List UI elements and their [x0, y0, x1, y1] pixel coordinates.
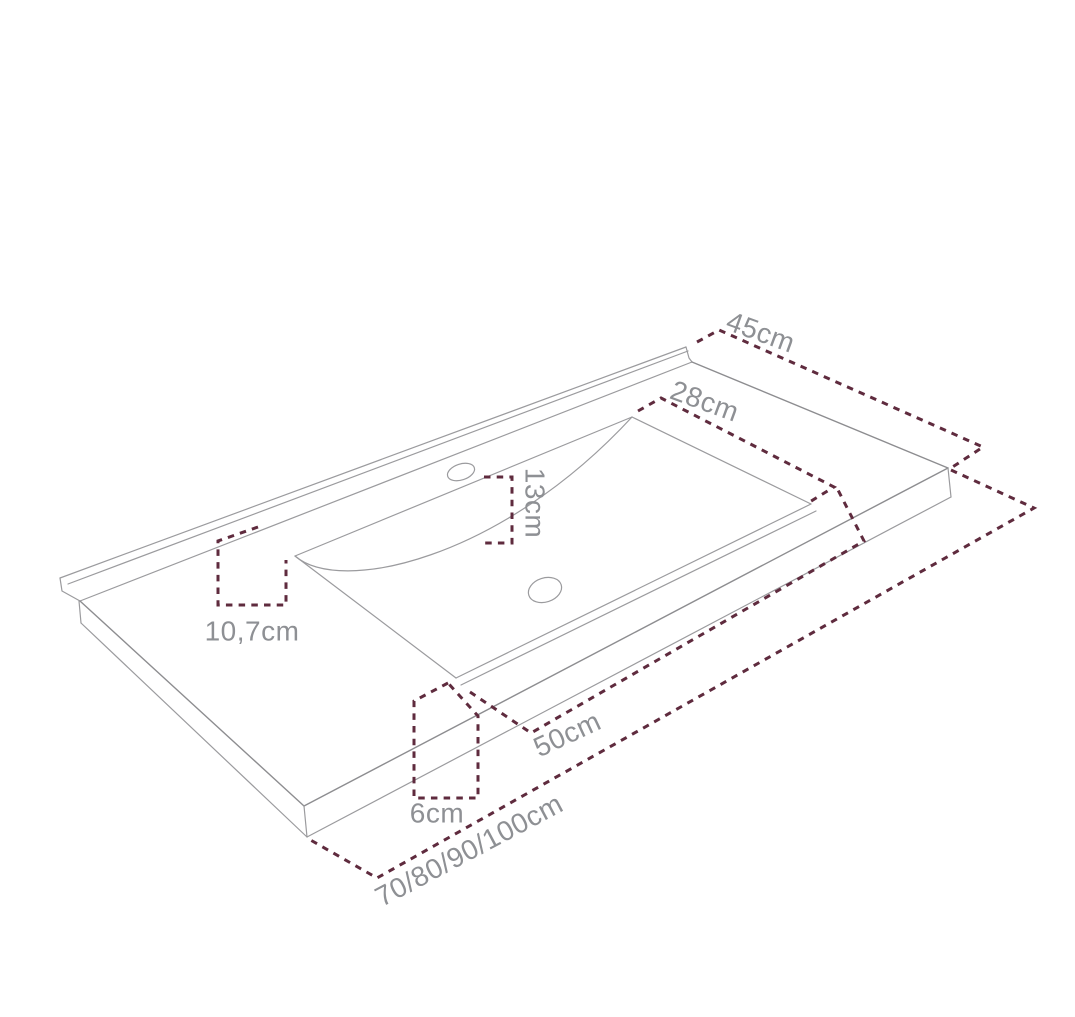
dimension-labels: 45cm 28cm 13cm 10,7cm 50cm 6cm 70/80/90/…: [205, 305, 800, 912]
backsplash-outer-top-edge: [60, 347, 686, 578]
basin-bowl-curve: [295, 417, 632, 571]
basin-rim-depth-label: 28cm: [666, 374, 743, 427]
basin-rear-offset-label: 10,7cm: [205, 615, 300, 646]
backsplash-right-end: [686, 347, 692, 362]
front-edge-height-label: 6cm: [410, 797, 464, 828]
diagram-canvas: 45cm 28cm 13cm 10,7cm 50cm 6cm 70/80/90/…: [0, 0, 1075, 1017]
basin-front-offset-dimension-line: [484, 477, 512, 543]
basin-outline: [295, 417, 816, 685]
slab-left-corner-vertical: [79, 601, 81, 623]
slab-front-left-corner-vertical: [304, 806, 307, 837]
drain-hole: [525, 573, 565, 606]
front-edge-height-dimension-line: [414, 683, 478, 798]
washbasin-dimension-diagram: 45cm 28cm 13cm 10,7cm 50cm 6cm 70/80/90/…: [0, 0, 1075, 1017]
basin-front-rim-inner-edge: [461, 511, 816, 685]
countertop-depth-label: 45cm: [722, 305, 799, 358]
basin-rear-rim-edge: [295, 417, 632, 556]
slab-rear-edge: [80, 362, 692, 601]
countertop-outline: [60, 347, 951, 837]
slab-bottom-left-edge: [81, 623, 307, 837]
backsplash-left-end: [60, 578, 80, 601]
basin-left-rim-edge: [295, 556, 456, 678]
basin-front-offset-label: 13cm: [520, 468, 551, 538]
basin-front-rim-edge: [456, 504, 811, 678]
slab-right-corner-vertical: [948, 468, 951, 497]
basin-rear-offset-dimension-line: [218, 527, 286, 605]
countertop-width-options-label: 70/80/90/100cm: [370, 788, 568, 913]
faucet-hole: [445, 460, 477, 484]
backsplash-front-top-edge: [68, 351, 688, 584]
